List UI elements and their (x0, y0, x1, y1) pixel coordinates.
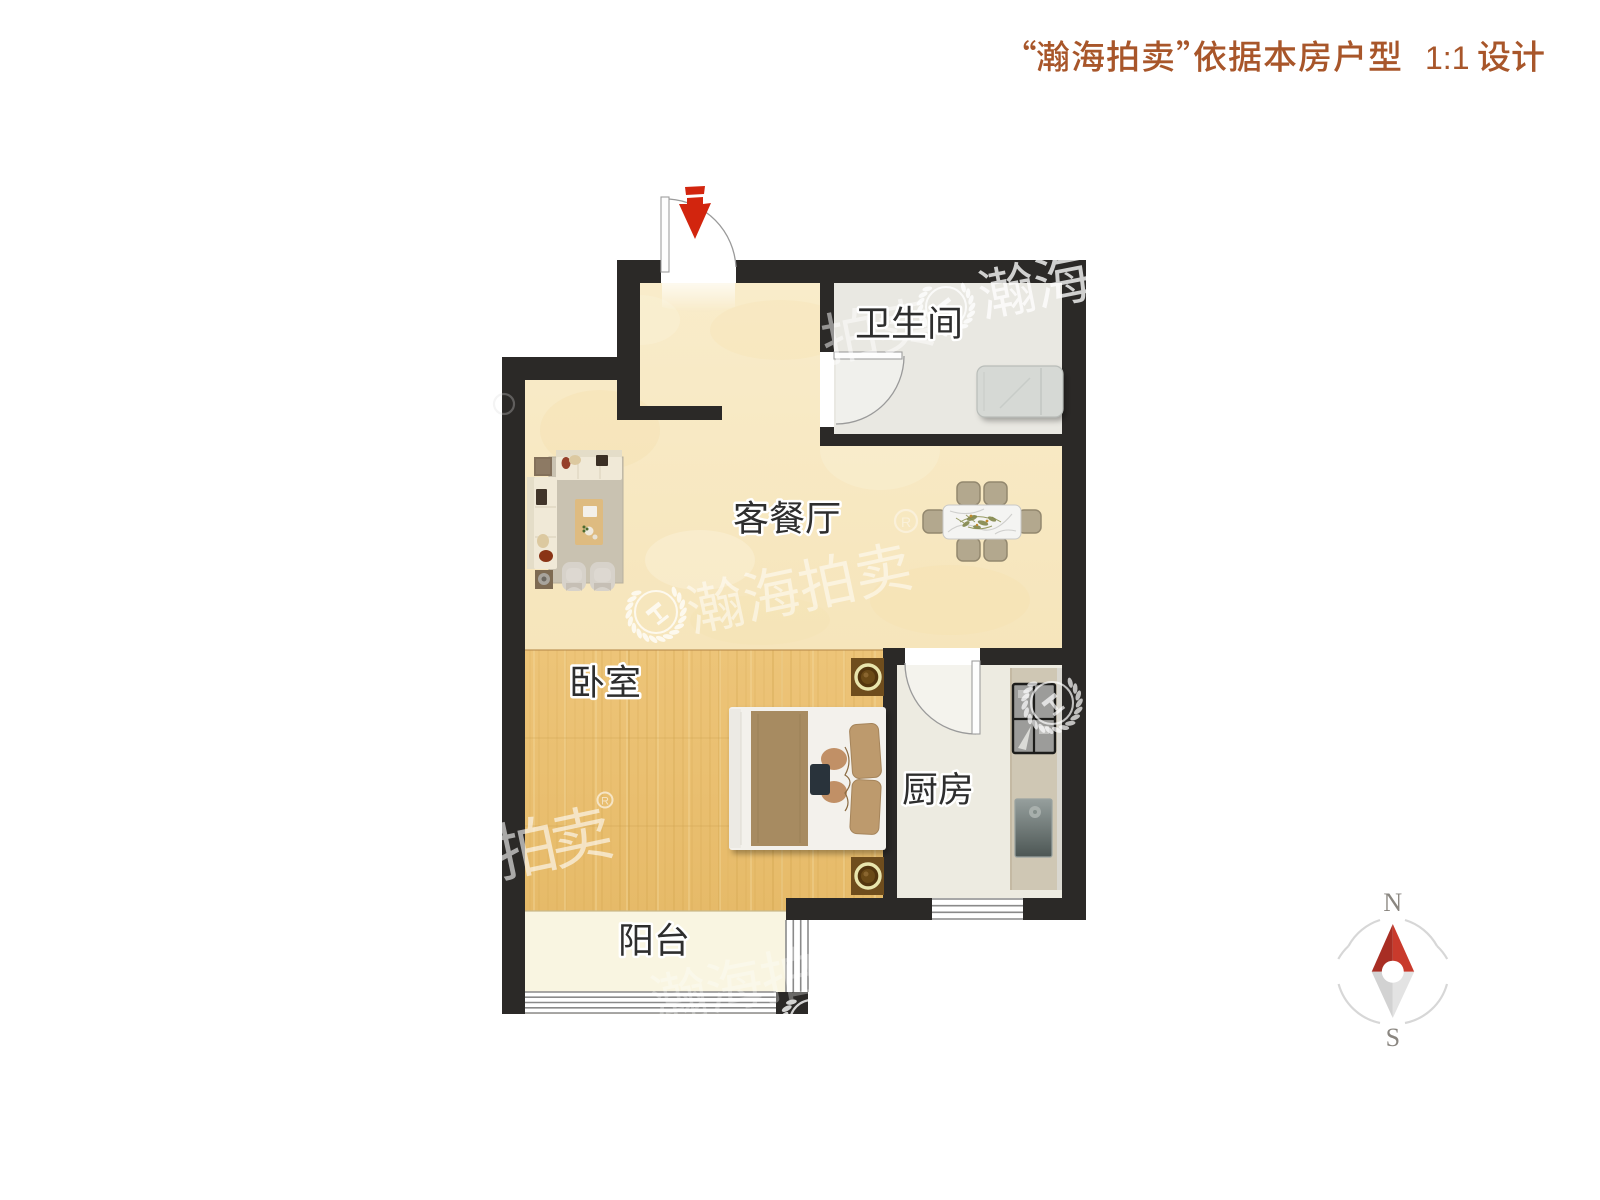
svg-text:R: R (901, 514, 911, 530)
svg-text:R: R (601, 796, 609, 808)
svg-text:1:1: 1:1 (1425, 40, 1469, 76)
svg-text:S: S (1386, 1023, 1400, 1052)
svg-text:N: N (1383, 888, 1402, 917)
